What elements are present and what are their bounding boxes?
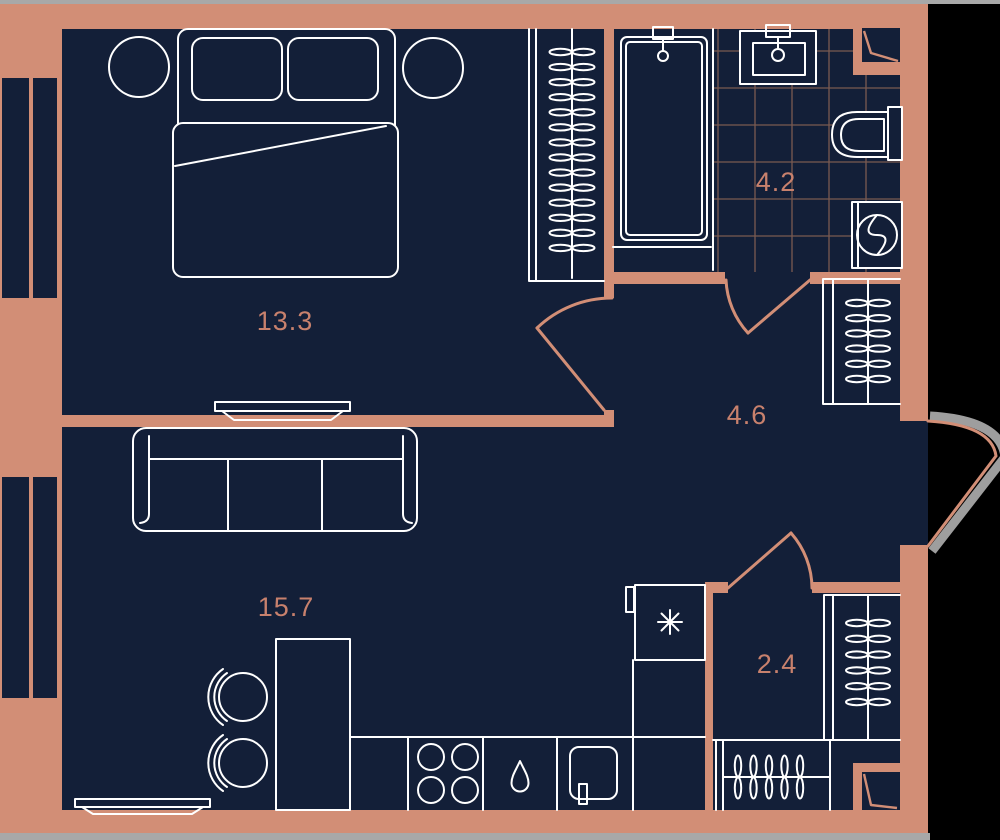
room-label-living: 15.7 (258, 592, 315, 622)
floor-plan: 13.3 4.2 4.6 2 (0, 0, 1000, 840)
window-pane (2, 78, 29, 298)
floor-plan-canvas: 13.3 4.2 4.6 2 (0, 0, 1000, 840)
bottom-edge-strip (0, 833, 930, 840)
wall-closet-top (812, 582, 900, 593)
wall-right-lower (900, 545, 928, 833)
wall-bedroom-living (62, 415, 613, 427)
window-pane (33, 78, 57, 298)
wall-bedroom-door-stub (604, 410, 614, 427)
top-edge-strip (0, 0, 1000, 4)
washing-machine-icon (852, 202, 902, 268)
wall-closet-left (705, 593, 713, 810)
bed-blanket (173, 123, 398, 277)
wall-closet-stub (705, 582, 728, 593)
bath-sink-icon (740, 25, 816, 84)
room-label-hallway: 4.6 (727, 400, 768, 430)
wall-bedroom-hall (604, 29, 614, 298)
room-label-wardrobe: 2.4 (757, 649, 798, 679)
wall-right-upper (900, 4, 928, 421)
vent-shaft-top-icon (862, 28, 900, 62)
room-label-bedroom: 13.3 (257, 306, 314, 336)
toilet-tank (888, 107, 902, 160)
entrance-doorway-floor (900, 421, 928, 545)
toilet-icon (832, 107, 902, 160)
snowflake-icon (658, 610, 682, 634)
bathtub-icon (613, 27, 713, 270)
window-pane (33, 477, 57, 698)
room-label-bathroom: 4.2 (756, 167, 797, 197)
wall-bath-hall-left (613, 272, 725, 284)
vent-shaft-bottom-icon (862, 772, 900, 810)
window-pane (2, 477, 29, 698)
